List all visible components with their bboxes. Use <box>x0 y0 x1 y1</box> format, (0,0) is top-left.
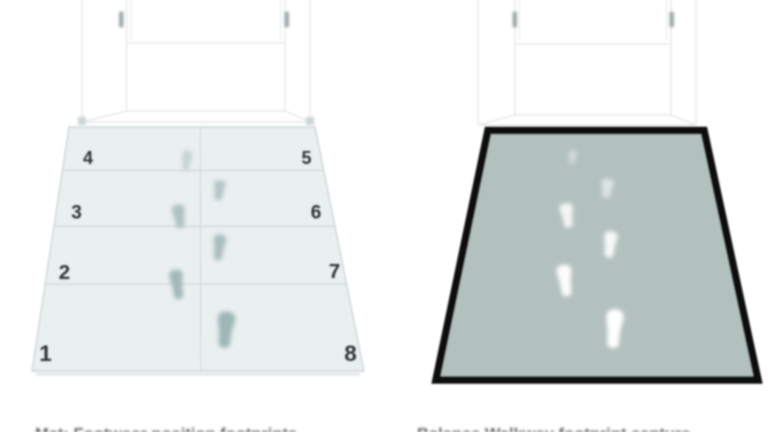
svg-text:Balance Walkway footprint capt: Balance Walkway footprint capture <box>417 426 691 432</box>
svg-text:6: 6 <box>311 202 322 223</box>
svg-text:7: 7 <box>329 260 340 283</box>
svg-text:5: 5 <box>301 148 311 168</box>
svg-text:4: 4 <box>83 148 93 168</box>
svg-text:Mat: Footwear position footpri: Mat: Footwear position footprints <box>35 426 297 432</box>
svg-text:3: 3 <box>71 202 82 223</box>
svg-text:8: 8 <box>344 341 357 366</box>
svg-text:2: 2 <box>59 261 70 284</box>
svg-text:1: 1 <box>39 341 52 366</box>
